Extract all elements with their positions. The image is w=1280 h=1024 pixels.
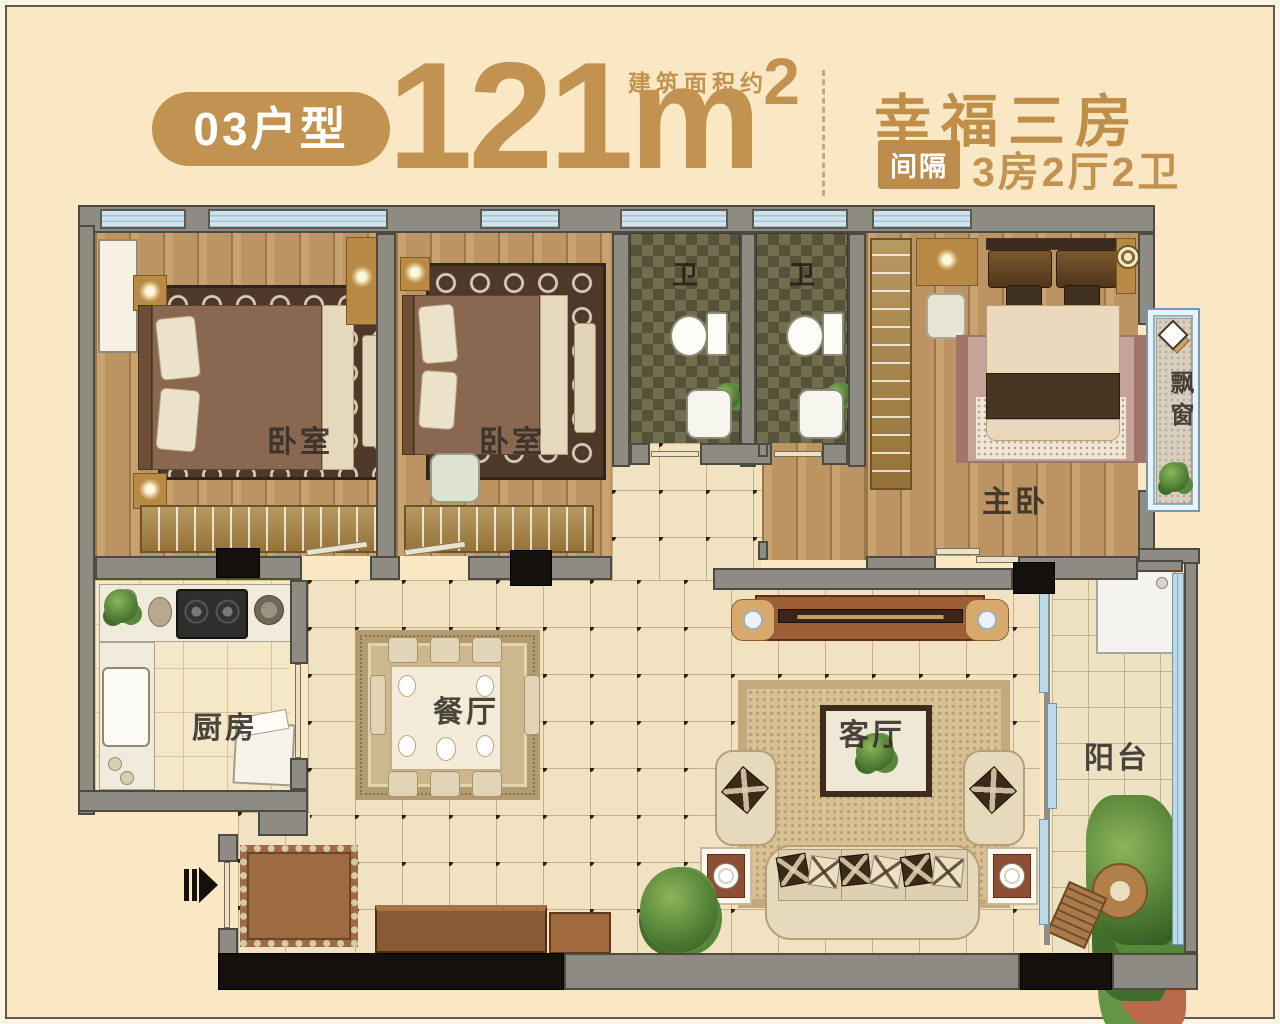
kitchen-stove bbox=[176, 589, 248, 639]
wall-kitchen-right-top bbox=[290, 580, 308, 664]
master-medallion bbox=[1116, 245, 1140, 269]
entry-door-leaf bbox=[224, 862, 230, 928]
area-figure: 121m2 bbox=[388, 40, 798, 192]
bath2-sink bbox=[798, 389, 844, 439]
balcony-sliding-panel-2 bbox=[1047, 703, 1057, 809]
kitchen-label: 厨房 bbox=[175, 703, 275, 747]
dining-chair-top-2 bbox=[430, 637, 460, 663]
bedroom1-cabinet bbox=[346, 237, 378, 325]
wall-bath-bottom-3 bbox=[822, 443, 848, 465]
dining-label: 餐厅 bbox=[416, 687, 516, 731]
bay-window: 飘窗 bbox=[1146, 308, 1200, 512]
window-top-2 bbox=[208, 209, 388, 229]
wall-left bbox=[78, 225, 95, 815]
sofa-pillow-6 bbox=[932, 856, 965, 889]
bedroom2-bench bbox=[574, 323, 596, 433]
kitchen-plant bbox=[104, 589, 138, 623]
tv-screen bbox=[778, 609, 963, 623]
washing-machine-knob bbox=[1156, 577, 1168, 589]
balcony-sliding-panel-1 bbox=[1039, 587, 1049, 693]
dining-plate-4 bbox=[476, 735, 494, 757]
master-bed-headboard bbox=[986, 238, 1120, 250]
sofa-pillow-1 bbox=[776, 853, 811, 888]
bay-window-label: 飘窗 bbox=[1162, 370, 1197, 434]
bath1-sink bbox=[686, 389, 732, 439]
master-bed-band bbox=[986, 373, 1120, 419]
bath1-toilet-bowl bbox=[670, 315, 708, 357]
sofa-pillow-5 bbox=[900, 853, 934, 887]
dining-plate-1 bbox=[398, 675, 416, 697]
bath2-label: 卫 bbox=[772, 255, 832, 292]
sideboard-small bbox=[549, 912, 611, 954]
master-bed-sheet bbox=[986, 305, 1120, 375]
sofa-pillow-4 bbox=[869, 855, 904, 890]
master-entry-post-top bbox=[758, 443, 768, 457]
kitchen-pan bbox=[254, 595, 284, 625]
sofa-side-table-left-dish bbox=[713, 863, 739, 889]
dining-chair-bottom-2 bbox=[430, 771, 460, 797]
wall-kitchen-right-bottom bbox=[290, 758, 308, 790]
master-wardrobe bbox=[870, 238, 912, 490]
unit-type-badge: 03户型 bbox=[152, 92, 390, 166]
layout-description: 3房2厅2卫 bbox=[972, 138, 1181, 198]
bedroom1-pillow-2 bbox=[155, 387, 200, 452]
wall-bath2-right bbox=[848, 233, 866, 467]
wall-bath1-left bbox=[612, 233, 630, 467]
header-dashed-divider bbox=[822, 70, 825, 196]
bath1-door-leaf bbox=[651, 451, 699, 457]
bath2-toilet-tank bbox=[822, 312, 844, 356]
entry-arrow-bar-2 bbox=[192, 869, 197, 901]
bedroom2-label: 卧室 bbox=[462, 417, 562, 461]
bedroom1-label: 卧室 bbox=[250, 417, 350, 461]
balcony-label: 阳台 bbox=[1067, 733, 1167, 777]
window-top-1 bbox=[100, 209, 186, 229]
wall-bottom-gray-1 bbox=[564, 953, 1020, 990]
entry-arrow-head bbox=[199, 867, 218, 903]
master-sliding-door-1 bbox=[936, 548, 980, 555]
master-stool bbox=[926, 293, 966, 339]
layout-badge: 间隔 bbox=[878, 140, 960, 189]
kitchen-dish-2 bbox=[120, 771, 134, 785]
area-note: 建筑面积约 bbox=[628, 64, 768, 98]
dining-side-bench-left bbox=[370, 675, 386, 735]
wall-kitchen-bottom bbox=[78, 790, 308, 812]
wall-mid-2 bbox=[370, 556, 400, 580]
bedroom2-nightstand-top bbox=[400, 257, 430, 291]
area-value: 121 bbox=[388, 31, 630, 201]
balcony-window-glass bbox=[1172, 573, 1184, 945]
area-unit: m bbox=[630, 35, 762, 200]
window-top-4 bbox=[620, 209, 728, 229]
tv-side-table-right bbox=[965, 599, 1009, 641]
sofa-side-table-right-dish bbox=[999, 863, 1025, 889]
dining-chair-bottom-3 bbox=[472, 771, 502, 797]
wall-kitchen-step bbox=[258, 810, 308, 836]
bedroom2-pillow-1 bbox=[418, 304, 459, 365]
bedroom1-closet bbox=[98, 239, 138, 353]
wall-balcony-right bbox=[1184, 562, 1198, 953]
sofa-pillow-3 bbox=[839, 854, 872, 887]
entry-arrow-bar-1 bbox=[184, 869, 189, 901]
dining-plate-3 bbox=[398, 735, 416, 757]
kitchen-sink bbox=[102, 667, 150, 747]
bedroom1-bed-headboard bbox=[138, 305, 152, 470]
floorplan: 飘窗 卧室 卧室 卫 卫 主卧 厨房 餐厅 客厅 阳台 bbox=[78, 205, 1200, 990]
sideboard-large bbox=[375, 905, 547, 953]
bedroom1-nightstand-bottom bbox=[133, 473, 167, 509]
dining-chair-top-1 bbox=[388, 637, 418, 663]
kitchen-bowl bbox=[148, 597, 172, 627]
sofa-pillow-2 bbox=[807, 855, 841, 889]
entry-arrow bbox=[184, 867, 218, 903]
master-bed-pillow-1 bbox=[988, 250, 1052, 288]
wall-tv bbox=[713, 568, 1013, 590]
dining-chair-bottom-1 bbox=[388, 771, 418, 797]
kitchen-sliding-door bbox=[295, 664, 301, 758]
bath2-toilet-bowl bbox=[786, 315, 824, 357]
bay-window-plant bbox=[1159, 462, 1189, 492]
wall-bath-bottom-1 bbox=[630, 443, 650, 465]
master-dresser bbox=[916, 238, 978, 286]
wall-bottom-gray-2 bbox=[1112, 953, 1198, 990]
bath1-toilet-tank bbox=[706, 312, 728, 356]
dining-chair-top-3 bbox=[472, 637, 502, 663]
dining-plate-5 bbox=[436, 737, 456, 761]
bath2-door-leaf bbox=[774, 451, 822, 457]
master-entry-post-bottom bbox=[758, 541, 768, 560]
wall-entry-upper bbox=[218, 834, 238, 862]
entry-doormat bbox=[240, 845, 358, 947]
window-top-3 bbox=[480, 209, 560, 229]
bedroom2-bed-headboard bbox=[402, 295, 414, 455]
wall-bedroom-divider bbox=[376, 233, 396, 560]
master-bed-foot bbox=[986, 419, 1120, 441]
floorplan-page: { "header": { "unit_badge": "03户型", "are… bbox=[0, 0, 1280, 1024]
tv-side-table-left bbox=[731, 599, 775, 641]
column-tv-wall bbox=[1013, 562, 1055, 594]
wall-bath-divider bbox=[740, 233, 756, 467]
bath1-label: 卫 bbox=[655, 255, 715, 292]
window-top-6 bbox=[872, 209, 972, 229]
hall-plant bbox=[640, 867, 718, 953]
column-bedroom2-corner bbox=[510, 550, 552, 586]
balcony-sliding-panel-3 bbox=[1039, 819, 1049, 925]
window-top-5 bbox=[752, 209, 848, 229]
wall-bottom-black-long bbox=[218, 953, 564, 990]
column-bedroom1-corner bbox=[216, 548, 260, 578]
wall-mid-1 bbox=[95, 556, 302, 580]
bedroom2-pillow-2 bbox=[418, 370, 458, 430]
bedroom1-pillow-1 bbox=[155, 315, 201, 381]
master-bed-pillow-2 bbox=[1056, 250, 1118, 288]
dining-side-bench-right bbox=[524, 675, 540, 735]
sofa-side-table-right bbox=[986, 847, 1038, 905]
area-superscript: 2 bbox=[763, 44, 800, 118]
kitchen-dish-1 bbox=[108, 757, 122, 771]
living-label: 客厅 bbox=[822, 710, 922, 754]
wall-bottom-black-2 bbox=[1020, 953, 1112, 990]
master-bedroom-label: 主卧 bbox=[965, 477, 1065, 521]
